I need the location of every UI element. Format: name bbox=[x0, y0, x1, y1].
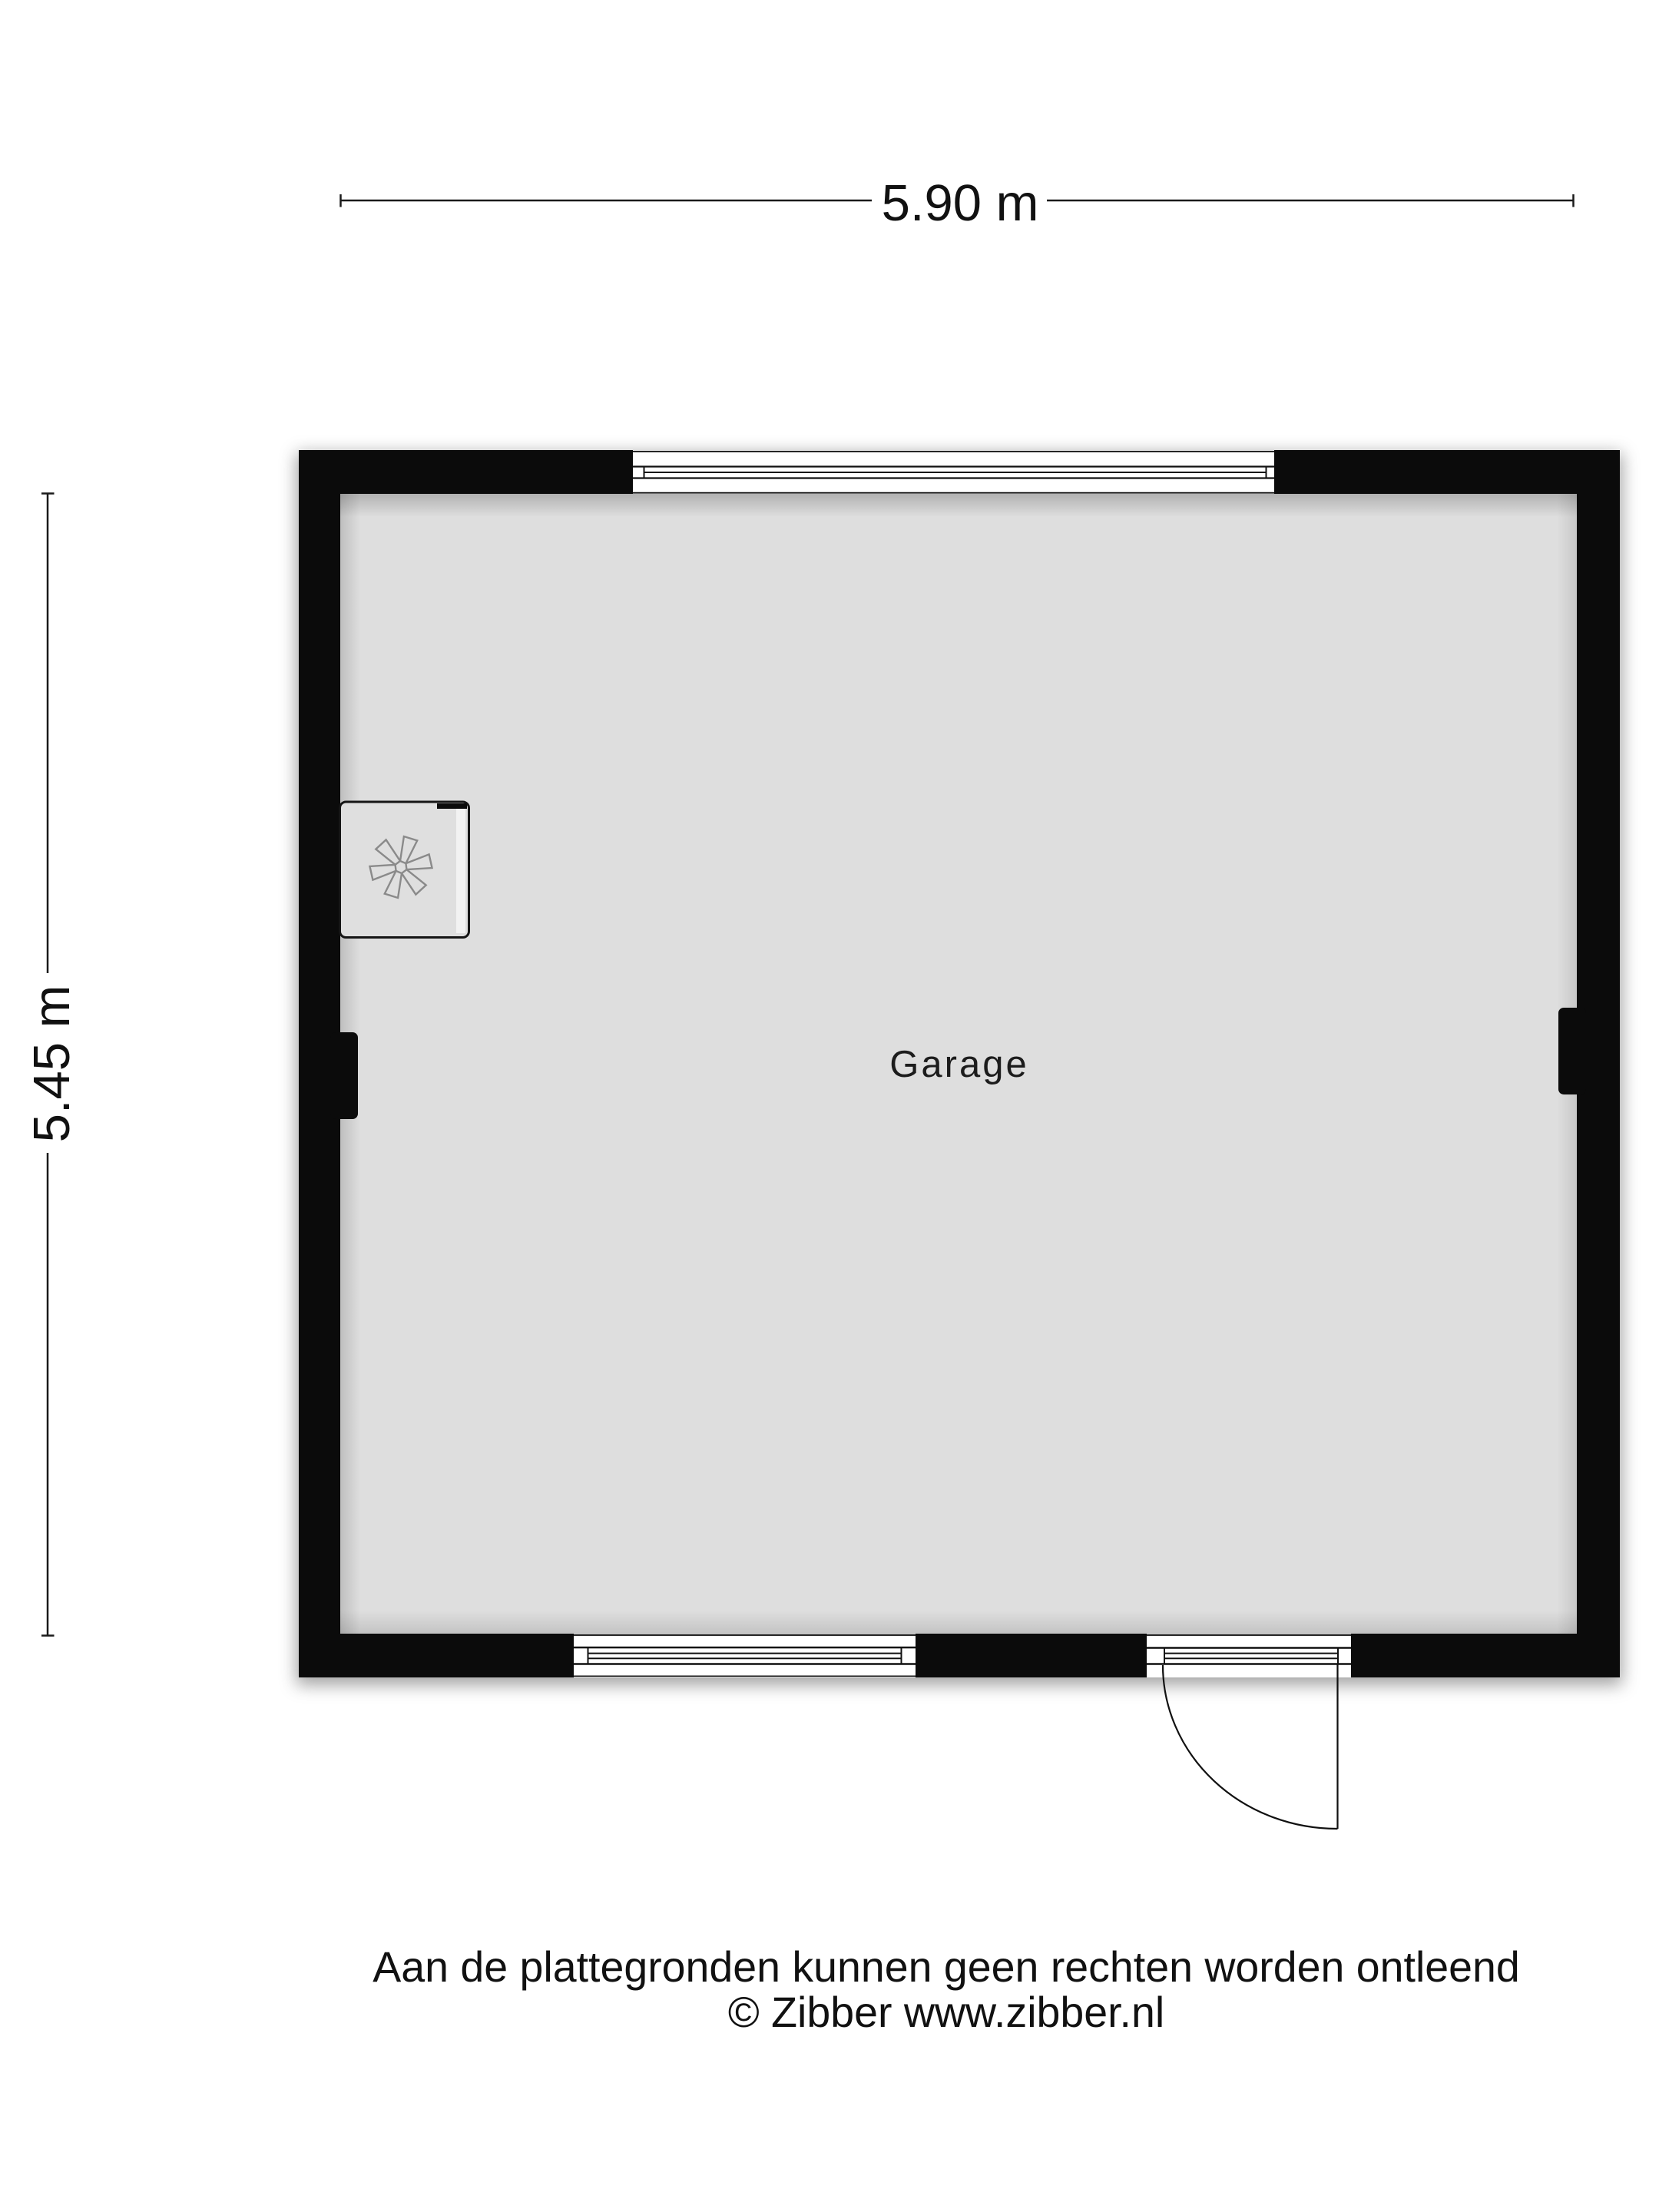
svg-text:5.45 m: 5.45 m bbox=[23, 985, 81, 1143]
svg-text:Aan de plattegronden kunnen ge: Aan de plattegronden kunnen geen rechten… bbox=[373, 1943, 1520, 1991]
svg-text:5.90 m: 5.90 m bbox=[882, 174, 1039, 232]
svg-text:© Zibber www.zibber.nl: © Zibber www.zibber.nl bbox=[728, 1988, 1164, 2036]
svg-text:Garage: Garage bbox=[889, 1044, 1028, 1085]
